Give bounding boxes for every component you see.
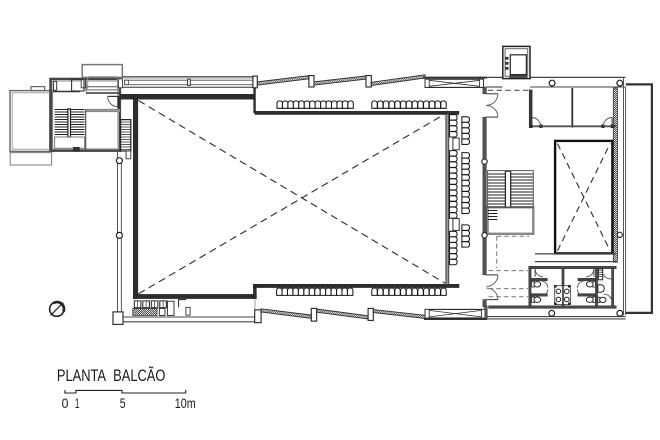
svg-text:0: 0 — [62, 396, 69, 411]
svg-text:5: 5 — [120, 396, 126, 411]
svg-text:1: 1 — [75, 396, 80, 411]
svg-text:10m: 10m — [175, 396, 196, 411]
svg-text:PLANTA BALCÃO: PLANTA BALCÃO — [57, 365, 165, 385]
